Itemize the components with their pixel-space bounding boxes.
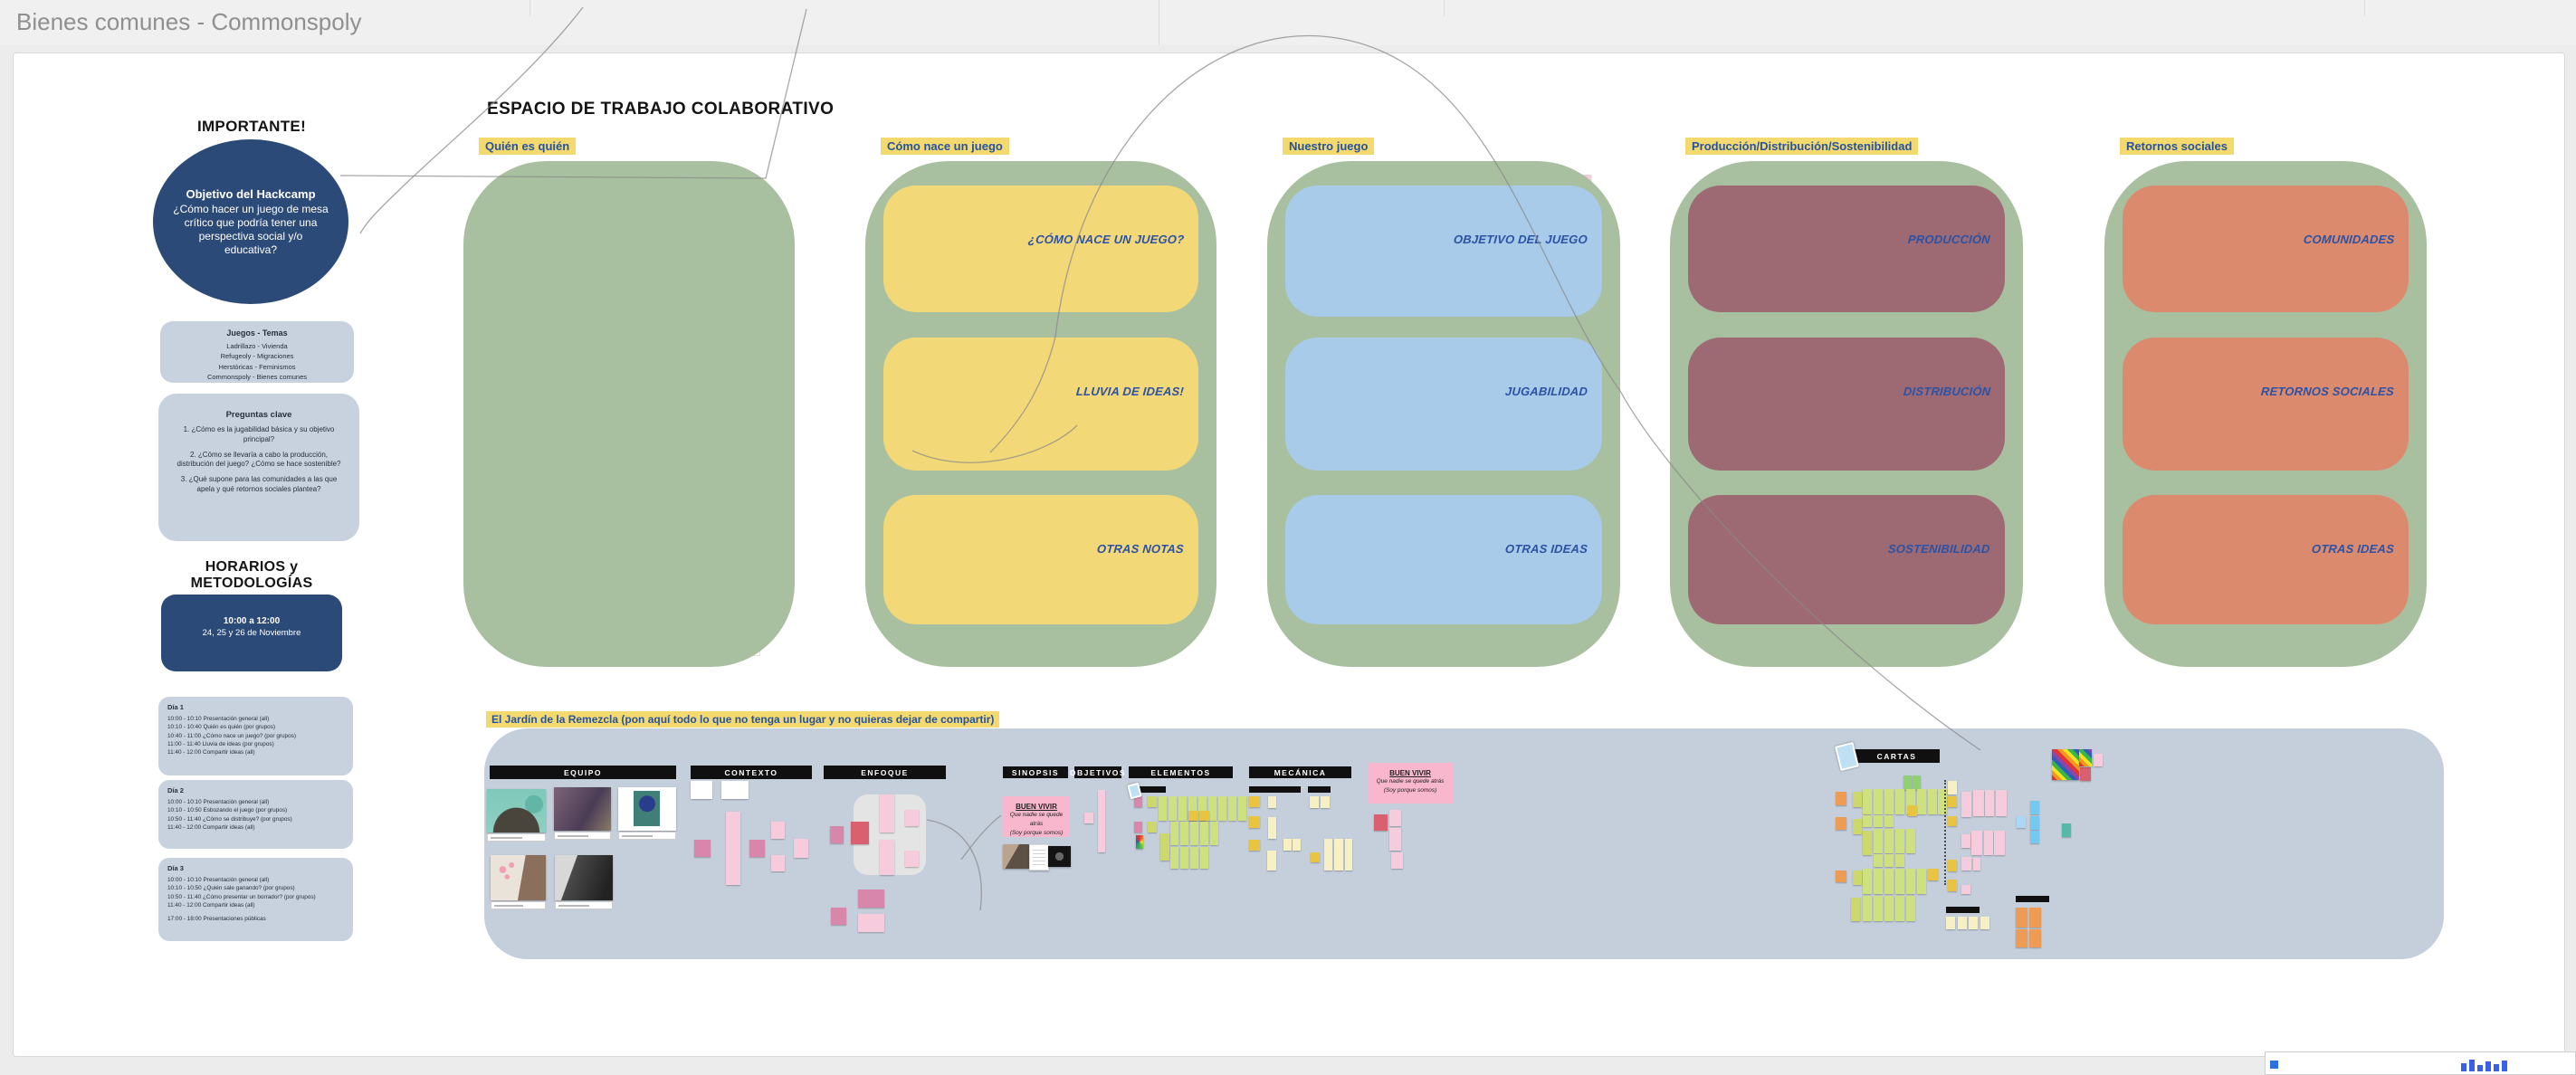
sticky-note[interactable] xyxy=(1267,851,1276,870)
section-title: OTRAS IDEAS xyxy=(1504,542,1588,556)
photo-card[interactable] xyxy=(1048,846,1071,867)
section-header-bar[interactable]: OBJETIVOS xyxy=(1074,766,1121,778)
sticky-note[interactable] xyxy=(1863,896,1872,921)
dia-schedule-row: 10:00 - 10:10 Presentación general (all) xyxy=(167,876,344,884)
sticky-note[interactable] xyxy=(1985,790,1994,816)
minimap-chip-icon xyxy=(2270,1061,2278,1069)
sticky-note[interactable] xyxy=(1389,828,1401,851)
buen-vivir-card[interactable]: BUEN VIVIR Que nadie se quede atrás (Soy… xyxy=(1003,796,1070,837)
workspace-heading: ESPACIO DE TRABAJO COLABORATIVO xyxy=(487,100,834,119)
sticky-note[interactable] xyxy=(1084,813,1093,823)
section-header-bar[interactable]: MECÁNICA xyxy=(1249,766,1351,778)
sticky-note[interactable] xyxy=(1268,796,1276,808)
sticky-note[interactable] xyxy=(1098,790,1105,852)
sticky-note[interactable] xyxy=(2016,929,2027,947)
sticky-note[interactable] xyxy=(1200,847,1208,869)
panel-label[interactable]: Cómo nace un juego xyxy=(881,138,1009,155)
juegos-temas-title: Juegos - Temas xyxy=(169,328,345,338)
dia-title: Día 3 xyxy=(167,864,344,872)
sticky-note[interactable] xyxy=(1895,829,1904,853)
sticky-note[interactable] xyxy=(1836,870,1846,882)
preguntas-clave-list: 1. ¿Cómo es la jugabilidad básica y su o… xyxy=(167,425,350,495)
sticky-note[interactable] xyxy=(830,826,844,843)
panel-label[interactable]: Nuestro juego xyxy=(1283,138,1374,155)
sticky-note[interactable] xyxy=(905,851,919,867)
sticky-note[interactable] xyxy=(2029,929,2041,947)
panel-label[interactable]: Producción/Distribución/Sostenibilidad xyxy=(1685,138,1918,155)
sticky-note[interactable] xyxy=(1863,831,1872,855)
sticky-note[interactable] xyxy=(1903,775,1912,790)
sticky-note[interactable] xyxy=(1283,839,1292,851)
sticky-note[interactable] xyxy=(1249,796,1260,807)
photo-name-strip xyxy=(487,833,546,842)
sticky-note[interactable] xyxy=(691,781,712,799)
sticky-note[interactable] xyxy=(1249,840,1260,851)
sticky-note[interactable] xyxy=(1324,839,1332,870)
sticky-note[interactable] xyxy=(1170,847,1178,869)
sticky-note[interactable] xyxy=(1170,822,1178,845)
sticky-note[interactable] xyxy=(1874,789,1883,814)
sticky-note[interactable] xyxy=(1389,810,1401,826)
dia-schedule-row: 11:00 - 11:40 Lluvia de ideas (por grupo… xyxy=(167,740,344,748)
photo-name-strip xyxy=(554,832,611,840)
photo-card[interactable] xyxy=(1029,844,1049,870)
section-title: RETORNOS SOCIALES xyxy=(2261,385,2395,398)
dia-schedule-row: 11:40 - 12:00 Compartir ideas (all) xyxy=(167,901,344,909)
sticky-note[interactable] xyxy=(1948,816,1957,826)
panel-section[interactable]: OBJETIVO DEL JUEGO xyxy=(1285,186,1602,317)
sticky-note[interactable] xyxy=(1917,789,1926,814)
sticky-note[interactable] xyxy=(1190,847,1198,869)
dia-schedule-box[interactable]: Día 110:00 - 10:10 Presentación general … xyxy=(158,697,353,775)
sticky-note[interactable] xyxy=(1374,814,1388,831)
sticky-note[interactable] xyxy=(1969,917,1978,929)
sticky-note[interactable] xyxy=(1160,833,1169,861)
sticky-note[interactable] xyxy=(1178,796,1187,821)
objetivo-body: ¿Cómo hacer un juego de mesa crítico que… xyxy=(173,203,329,257)
dia-schedule-row: 10:10 - 10:40 Quién es quién (por grupos… xyxy=(167,723,344,731)
juego-tema-item: Refugeoly - Migraciones xyxy=(169,351,345,361)
sticky-note[interactable] xyxy=(1159,796,1167,821)
section-header-bar[interactable]: CARTAS xyxy=(1854,749,1940,763)
photo-card[interactable] xyxy=(1136,835,1143,849)
sticky-note[interactable] xyxy=(1984,831,1993,855)
sticky-note[interactable] xyxy=(1134,822,1142,832)
sticky-note[interactable] xyxy=(726,812,740,885)
panel-section[interactable]: OTRAS IDEAS xyxy=(1285,495,1602,624)
sticky-note[interactable] xyxy=(1906,869,1915,894)
sticky-note[interactable] xyxy=(1874,896,1883,921)
mini-label-bar[interactable] xyxy=(1249,786,1301,793)
photo-name-strip xyxy=(555,901,613,909)
sticky-note[interactable] xyxy=(1853,792,1862,807)
sticky-note[interactable] xyxy=(1994,831,2005,855)
sticky-note[interactable] xyxy=(1238,796,1246,821)
buen-vivir-line1: Que nadie se quede atrás xyxy=(1003,811,1070,829)
sticky-note[interactable] xyxy=(1948,781,1957,794)
preguntas-clave-title: Preguntas clave xyxy=(167,410,350,420)
sticky-note[interactable] xyxy=(1895,896,1904,921)
photo-card[interactable] xyxy=(2079,749,2092,766)
sticky-note[interactable] xyxy=(1961,857,1971,870)
sticky-note[interactable] xyxy=(1895,789,1904,814)
panel-section[interactable]: LLUVIA DE IDEAS! xyxy=(883,338,1198,471)
sticky-note[interactable] xyxy=(1208,796,1216,821)
horario-time: 10:00 a 12:00 xyxy=(161,616,342,626)
sticky-note[interactable] xyxy=(880,840,894,875)
section-title: JUGABILIDAD xyxy=(1504,385,1588,398)
sticky-note[interactable] xyxy=(1895,869,1904,894)
sticky-note[interactable] xyxy=(1863,789,1872,814)
sticky-note[interactable] xyxy=(1188,811,1198,821)
sticky-note[interactable] xyxy=(1874,854,1883,867)
sticky-note[interactable] xyxy=(1180,847,1188,869)
sticky-note[interactable] xyxy=(1906,829,1915,853)
photo-card[interactable] xyxy=(2052,749,2079,780)
pregunta-item: 3. ¿Qué supone para las comunidades a la… xyxy=(171,475,347,495)
sticky-note[interactable] xyxy=(1200,822,1208,845)
mini-label-bar[interactable] xyxy=(2016,896,2049,902)
sticky-note[interactable] xyxy=(1863,869,1872,894)
sticky-note[interactable] xyxy=(1961,885,1970,894)
dia-schedule-row: 17:00 - 18:00 Presentaciones públicas xyxy=(167,915,344,923)
sticky-note[interactable] xyxy=(1293,839,1301,851)
sticky-note[interactable] xyxy=(1996,790,2007,816)
dia-schedule-row: 11:40 - 12:00 Compartir ideas (all) xyxy=(167,823,344,832)
sticky-note[interactable] xyxy=(1973,858,1980,870)
sticky-note[interactable] xyxy=(1874,869,1883,894)
panel-section[interactable]: PRODUCCIÓN xyxy=(1688,186,2005,312)
sticky-note[interactable] xyxy=(1853,819,1862,834)
section-title: PRODUCCIÓN xyxy=(1908,233,1991,246)
sticky-note[interactable] xyxy=(1334,839,1343,870)
photo-card[interactable] xyxy=(1003,844,1029,869)
workspace-panel[interactable] xyxy=(463,161,795,667)
sticky-note[interactable] xyxy=(2030,816,2039,830)
dia-schedule-row: 11:40 - 12:00 Compartir ideas (all) xyxy=(167,748,344,756)
buen-vivir-card[interactable]: BUEN VIVIR Que nadie se quede atrás (Soy… xyxy=(1368,763,1453,804)
photo-card[interactable] xyxy=(555,855,613,900)
panel-section[interactable]: OTRAS NOTAS xyxy=(883,495,1198,624)
sticky-note[interactable] xyxy=(749,840,765,857)
section-header-bar[interactable]: ENFOQUE xyxy=(824,766,946,779)
sticky-note[interactable] xyxy=(2062,823,2071,837)
pregunta-item: 1. ¿Cómo es la jugabilidad básica y su o… xyxy=(171,425,347,445)
dia-schedule-row: 10:00 - 10:10 Presentación general (all) xyxy=(167,798,344,806)
photo-name-strip xyxy=(618,832,676,840)
dia-schedule-row: 10:50 - 11:40 ¿Cómo presentar un borrado… xyxy=(167,893,344,901)
sticky-note[interactable] xyxy=(1345,839,1352,870)
mini-label-bar[interactable] xyxy=(1138,786,1166,793)
sticky-note[interactable] xyxy=(1884,896,1894,921)
panel-section[interactable]: JUGABILIDAD xyxy=(1285,338,1602,471)
sticky-note[interactable] xyxy=(1958,917,1967,929)
sticky-note[interactable] xyxy=(771,855,785,871)
horarios-heading: HORARIOS y METODOLOGÍAS xyxy=(184,559,320,593)
photo-card[interactable] xyxy=(554,787,611,831)
dia-schedule-box[interactable]: Día 210:00 - 10:10 Presentación general … xyxy=(158,780,353,849)
dia-schedule-row: 10:00 - 10:10 Presentación general (all) xyxy=(167,715,344,723)
minimap-widget[interactable] xyxy=(2265,1051,2576,1075)
juego-tema-item: Commonspoly - Bienes comunes xyxy=(169,372,345,382)
mini-label-bar[interactable] xyxy=(1946,907,1980,913)
sticky-note[interactable] xyxy=(2017,816,2026,828)
sticky-note[interactable] xyxy=(2080,767,2091,781)
pregunta-item: 2. ¿Cómo se llevaría a cabo la producció… xyxy=(171,451,347,471)
panel-section[interactable]: SOSTENIBILIDAD xyxy=(1688,495,2005,624)
sticky-note[interactable] xyxy=(1884,815,1894,827)
section-title: OTRAS IDEAS xyxy=(2311,542,2394,556)
sticky-note[interactable] xyxy=(1249,816,1260,828)
sticky-note[interactable] xyxy=(1971,831,1982,855)
minimap-bars-icon xyxy=(2461,1060,2507,1071)
sticky-note[interactable] xyxy=(1874,829,1883,853)
sticky-note[interactable] xyxy=(1853,870,1862,885)
sticky-note[interactable] xyxy=(1946,917,1955,929)
buen-vivir-title: BUEN VIVIR xyxy=(1003,803,1070,811)
photo-name-strip xyxy=(491,901,546,909)
sticky-note[interactable] xyxy=(1980,917,1989,929)
sticky-note[interactable] xyxy=(1928,789,1937,814)
section-header-bar[interactable]: ELEMENTOS xyxy=(1129,766,1233,778)
sticky-note[interactable] xyxy=(694,840,711,857)
sticky-note[interactable] xyxy=(1874,815,1883,827)
objetivo-title: Objetivo del Hackcamp xyxy=(173,187,329,201)
sticky-note[interactable] xyxy=(2030,801,2039,814)
panel-label[interactable]: Retornos sociales xyxy=(2120,138,2234,155)
sticky-note[interactable] xyxy=(1210,822,1218,845)
sticky-note[interactable] xyxy=(2030,831,2039,843)
sticky-note[interactable] xyxy=(1310,796,1319,808)
section-header-bar[interactable]: EQUIPO xyxy=(490,766,676,779)
section-header-bar[interactable]: CONTEXTO xyxy=(691,766,812,779)
objetivo-hackcamp-circle[interactable]: Objetivo del Hackcamp ¿Cómo hacer un jue… xyxy=(153,139,348,304)
mini-label-bar[interactable] xyxy=(1308,786,1331,793)
sticky-note[interactable] xyxy=(1928,869,1938,880)
sticky-note[interactable] xyxy=(1148,822,1157,832)
sticky-note[interactable] xyxy=(1169,796,1177,821)
photo-card[interactable] xyxy=(487,789,546,832)
jardin-label: El Jardín de la Remezcla (pon aquí todo … xyxy=(486,711,999,728)
sticky-note[interactable] xyxy=(1199,811,1209,821)
sticky-note[interactable] xyxy=(1148,796,1157,807)
section-title: SOSTENIBILIDAD xyxy=(1888,542,1991,556)
panel-section[interactable]: RETORNOS SOCIALES xyxy=(2123,338,2409,471)
juego-tema-item: Herstóricas - Feminismos xyxy=(169,362,345,372)
buen-vivir-line2: (Soy porque somos) xyxy=(1368,786,1453,795)
sticky-note[interactable] xyxy=(1228,796,1236,821)
dia-schedule-box[interactable]: Día 310:00 - 10:10 Presentación general … xyxy=(158,858,353,941)
panel-section[interactable]: COMUNIDADES xyxy=(2123,186,2409,312)
sticky-note[interactable] xyxy=(1884,869,1894,894)
sticky-note[interactable] xyxy=(1908,805,1917,816)
sticky-note[interactable] xyxy=(905,810,919,826)
jardin-panel[interactable] xyxy=(484,728,2444,959)
section-header-bar[interactable]: SINOPSIS xyxy=(1003,766,1068,778)
panel-section[interactable]: DISTRIBUCIÓN xyxy=(1688,338,2005,471)
sticky-note[interactable] xyxy=(858,914,884,932)
dia-schedule-row: 10:50 - 11:40 ¿Cómo se distribuye? (por … xyxy=(167,815,344,823)
buen-vivir-line2: (Soy porque somos) xyxy=(1003,829,1070,838)
sticky-note[interactable] xyxy=(2016,908,2027,928)
sticky-note[interactable] xyxy=(1917,869,1926,894)
juegos-temas-box[interactable]: Juegos - Temas Ladrillazo - ViviendaRefu… xyxy=(160,321,354,383)
sticky-note[interactable] xyxy=(1948,796,1957,807)
panel-section[interactable]: OTRAS IDEAS xyxy=(2123,495,2409,624)
sticky-note[interactable] xyxy=(1311,852,1320,862)
section-title: OBJETIVO DEL JUEGO xyxy=(1454,233,1589,246)
sticky-note[interactable] xyxy=(771,822,785,839)
sticky-note[interactable] xyxy=(1863,815,1872,827)
sticky-note[interactable] xyxy=(1884,854,1894,867)
horario-general-box[interactable]: 10:00 a 12:00 24, 25 y 26 de Noviembre xyxy=(161,595,342,671)
sticky-note[interactable] xyxy=(1836,817,1846,830)
section-title: ¿CÓMO NACE UN JUEGO? xyxy=(1027,233,1184,246)
dotted-divider xyxy=(1944,780,1946,885)
juegos-temas-list: Ladrillazo - ViviendaRefugeoly - Migraci… xyxy=(169,341,345,382)
sticky-note[interactable] xyxy=(831,908,846,925)
sticky-note[interactable] xyxy=(1851,898,1860,921)
sticky-note[interactable] xyxy=(2094,754,2103,766)
dia-title: Día 1 xyxy=(167,703,344,711)
sticky-note[interactable] xyxy=(1961,792,1971,817)
dia-title: Día 2 xyxy=(167,786,344,794)
sticky-note[interactable] xyxy=(858,889,884,908)
panel-label[interactable]: Quién es quién xyxy=(479,138,576,155)
dia-schedule-row: 10:40 - 11:00 ¿Cómo nace un juego? (por … xyxy=(167,732,344,740)
sticky-note[interactable] xyxy=(1218,796,1226,821)
sticky-note[interactable] xyxy=(1268,817,1276,839)
importante-heading: IMPORTANTE! xyxy=(152,118,351,136)
sticky-note[interactable] xyxy=(1948,860,1957,871)
sticky-note[interactable] xyxy=(851,822,869,844)
photo-card[interactable] xyxy=(618,787,676,831)
dia-schedule-row: 10:10 - 10:50 ¿Quién sale ganando? (por … xyxy=(167,884,344,892)
sticky-note[interactable] xyxy=(1906,896,1915,921)
buen-vivir-line1: Que nadie se quede atrás xyxy=(1368,777,1453,786)
sticky-note[interactable] xyxy=(2029,908,2041,928)
sticky-note[interactable] xyxy=(1884,829,1894,853)
sticky-note[interactable] xyxy=(1884,789,1894,814)
section-title: COMUNIDADES xyxy=(2303,233,2394,246)
juego-tema-item: Ladrillazo - Vivienda xyxy=(169,341,345,351)
section-title: OTRAS NOTAS xyxy=(1097,542,1185,556)
sticky-note[interactable] xyxy=(794,839,808,858)
sticky-note[interactable] xyxy=(1180,822,1188,845)
sticky-note[interactable] xyxy=(1973,790,1984,816)
dia-schedule-row: 10:10 - 10:50 Esbozando el juego (por gr… xyxy=(167,806,344,814)
horario-dates: 24, 25 y 26 de Noviembre xyxy=(161,628,342,638)
sticky-note[interactable] xyxy=(1391,852,1403,869)
preguntas-clave-box[interactable]: Preguntas clave 1. ¿Cómo es la jugabilid… xyxy=(158,394,359,541)
sticky-note[interactable] xyxy=(1836,792,1846,805)
app-window: Bienes comunes - Commonspoly IMPORTANTE!… xyxy=(0,0,2576,1075)
section-title: LLUVIA DE IDEAS! xyxy=(1075,385,1184,398)
board-canvas[interactable]: IMPORTANTE! Objetivo del Hackcamp ¿Cómo … xyxy=(0,0,2576,1075)
section-title: DISTRIBUCIÓN xyxy=(1903,385,1990,398)
sticky-note[interactable] xyxy=(1895,854,1904,867)
buen-vivir-title: BUEN VIVIR xyxy=(1368,769,1453,777)
sticky-note[interactable] xyxy=(721,781,749,799)
photo-card[interactable] xyxy=(491,855,546,900)
sticky-note[interactable] xyxy=(1190,822,1198,845)
sticky-note[interactable] xyxy=(1961,834,1970,848)
sticky-note[interactable] xyxy=(1948,880,1957,891)
panel-section[interactable]: ¿CÓMO NACE UN JUEGO? xyxy=(883,186,1198,312)
sticky-note[interactable] xyxy=(1913,775,1921,790)
sticky-note[interactable] xyxy=(1321,796,1330,808)
sticky-note[interactable] xyxy=(880,794,894,832)
